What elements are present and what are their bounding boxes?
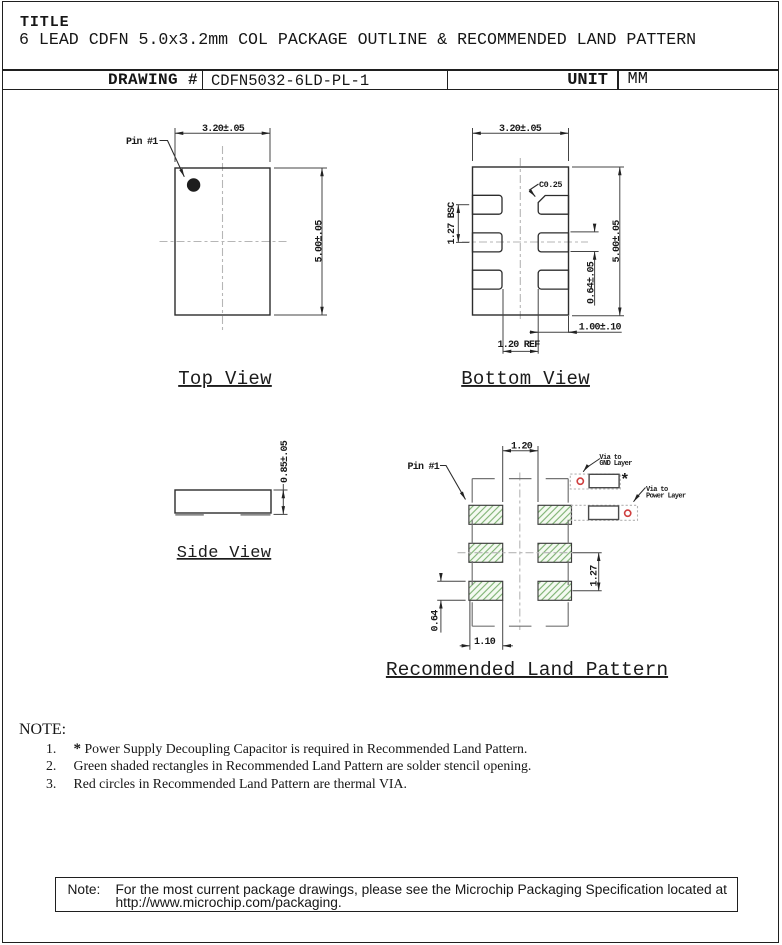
svg-text:0.64±.05: 0.64±.05 [587, 261, 598, 304]
svg-text:Top View: Top View [178, 368, 272, 390]
svg-text:Pin #1: Pin #1 [408, 461, 440, 473]
svg-text:1.27 BSC: 1.27 BSC [447, 202, 458, 245]
svg-text:0.64: 0.64 [431, 610, 442, 632]
svg-text:Pin #1: Pin #1 [126, 136, 158, 148]
svg-text:Recommended Land Pattern: Recommended Land Pattern [386, 659, 668, 681]
svg-text:C0.25: C0.25 [539, 180, 562, 190]
svg-text:0.85±.05: 0.85±.05 [280, 440, 291, 483]
svg-text:3.20±.05: 3.20±.05 [499, 124, 542, 135]
svg-text:1.10: 1.10 [474, 637, 496, 648]
svg-text:*: * [620, 472, 630, 490]
svg-text:1.00±.10: 1.00±.10 [579, 323, 622, 334]
svg-text:1.20: 1.20 [511, 442, 533, 453]
svg-text:5.00±.05: 5.00±.05 [612, 220, 623, 263]
svg-text:GND Layer: GND Layer [599, 460, 632, 468]
svg-text:Bottom View: Bottom View [461, 368, 590, 390]
svg-text:Side View: Side View [177, 544, 272, 563]
svg-text:Power Layer: Power Layer [646, 492, 686, 500]
svg-text:1.27: 1.27 [590, 565, 601, 587]
svg-text:3.20±.05: 3.20±.05 [202, 124, 245, 135]
svg-text:1.20 REF: 1.20 REF [498, 340, 541, 351]
svg-text:5.00±.05: 5.00±.05 [314, 220, 325, 263]
